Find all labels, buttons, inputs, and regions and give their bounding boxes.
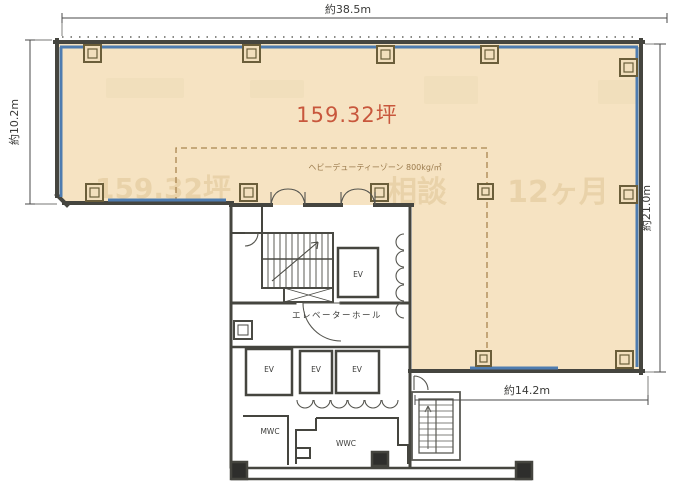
column-marker [476,351,491,366]
elevator-label: EV [264,365,275,374]
column-marker [478,184,493,199]
dimension-top [62,13,667,36]
hall-door [303,303,341,341]
small-door [245,233,258,246]
dimension-left-label: 約10.2m [7,99,21,145]
accordion-doors-horizontal [297,400,398,408]
column-marker [377,46,394,63]
heavy-duty-zone-label: ヘビーデューティーゾーン 800kg/㎡ [308,162,441,172]
column-marker [240,184,257,201]
floor-area-label: 159.32坪 [296,103,397,127]
dimension-right-label: 約21.0m [639,185,653,231]
elevator-label: EV [353,270,364,279]
staircase-main [262,233,333,302]
elevator-shaft-upper: EV [338,248,378,297]
elevator-label: EV [311,365,322,374]
floor-plan: 159.32坪 相談 12ヶ月 ヘビーデューティーゾーン 800kg/㎡ 159… [0,0,685,497]
column-marker [481,46,498,63]
core-bottom-band [231,452,532,479]
mens-wc-label: MWC [260,427,279,436]
column-marker [620,59,637,76]
annex-door [414,376,428,390]
watermark-months: 12ヶ月 [507,175,609,210]
dimension-left [25,40,57,204]
column-marker [86,184,103,201]
dimension-top-label: 約38.5m [325,2,371,16]
column-marker [84,45,101,62]
womens-wc-label: WWC [336,439,356,448]
column-marker [620,186,637,203]
elevator-label: EV [352,365,363,374]
staircase-secondary [412,392,460,460]
dimension-bottom-label: 約14.2m [504,383,550,397]
column-marker [616,351,633,368]
column-marker [243,45,260,62]
duct-box [234,321,252,339]
accordion-doors-vertical [396,234,404,318]
